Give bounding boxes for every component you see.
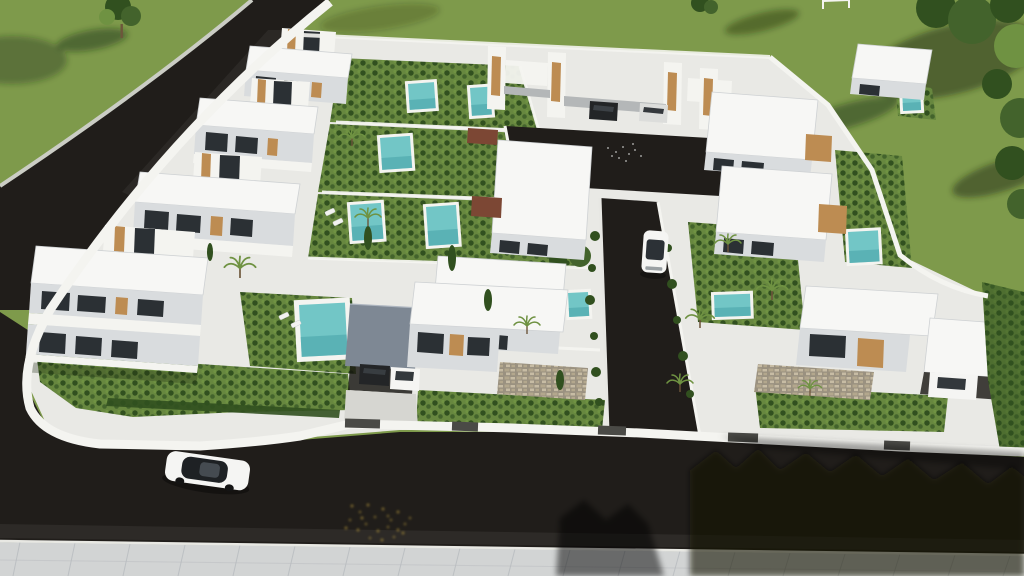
wood-slat-screen bbox=[449, 334, 464, 356]
pool bbox=[845, 227, 883, 266]
stone-feature-wall bbox=[497, 362, 588, 400]
flat-roof bbox=[716, 166, 832, 240]
wood-door bbox=[551, 62, 561, 102]
flat-roof bbox=[492, 140, 592, 240]
flat-roof bbox=[852, 44, 932, 84]
pool-corner-villa bbox=[294, 297, 353, 362]
wood-deck-pergola bbox=[805, 134, 832, 162]
wood-slat-screen bbox=[257, 79, 266, 105]
terracotta-pergola bbox=[467, 128, 498, 145]
carport-car-dark bbox=[589, 101, 618, 121]
pool bbox=[377, 133, 416, 173]
pool bbox=[711, 291, 754, 320]
wood-door bbox=[667, 72, 677, 111]
carport-car-silver bbox=[639, 103, 668, 123]
carport-car-white bbox=[390, 367, 420, 391]
villa-right-2 bbox=[714, 166, 832, 262]
flat-roof bbox=[706, 92, 818, 160]
pool bbox=[423, 202, 462, 249]
villa-right-1 bbox=[704, 92, 818, 178]
carport-car-dark bbox=[359, 364, 390, 386]
pool bbox=[405, 79, 439, 113]
wood-deck-pergola bbox=[818, 204, 847, 234]
carport-car-white bbox=[928, 372, 978, 400]
wood-slat-screen bbox=[857, 338, 884, 368]
terracotta-pergola bbox=[471, 196, 502, 218]
villa-top-right bbox=[850, 44, 932, 100]
render-viewport bbox=[0, 0, 1024, 576]
wood-slat-screen bbox=[114, 226, 125, 252]
wood-door bbox=[491, 56, 501, 96]
aerial-render bbox=[0, 0, 1024, 576]
flat-roof bbox=[800, 286, 938, 336]
